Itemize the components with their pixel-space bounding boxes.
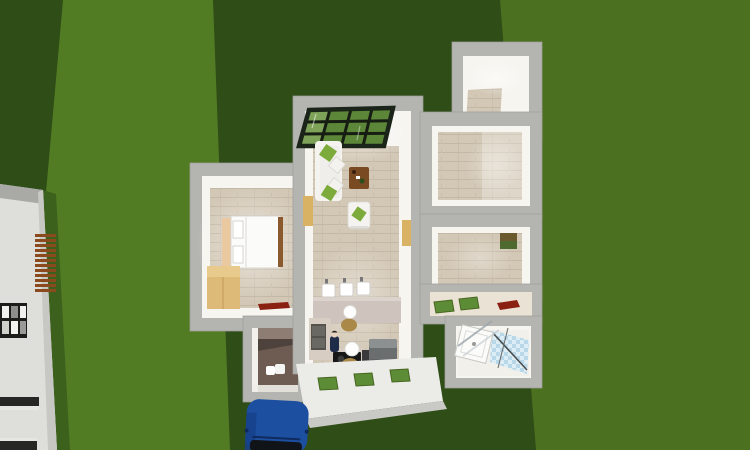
pendant-lamp[interactable] [344, 306, 357, 319]
doormat[interactable] [354, 373, 374, 386]
doormat[interactable] [459, 297, 479, 310]
doormat[interactable] [434, 300, 454, 313]
sofa[interactable] [315, 141, 345, 201]
pendant-lamp[interactable] [345, 342, 359, 356]
living-room [293, 96, 423, 379]
double-bed[interactable] [222, 216, 283, 268]
doormat[interactable] [318, 377, 338, 390]
coffee-table[interactable] [349, 167, 369, 189]
plant [359, 178, 364, 183]
door-left[interactable] [303, 196, 313, 226]
round-rug [341, 319, 357, 332]
glass-skylight [299, 108, 393, 146]
lit-floor-edge [252, 385, 298, 392]
window-grid [0, 303, 27, 338]
3d-viewport[interactable] [0, 0, 750, 450]
wardrobe[interactable] [207, 266, 240, 309]
shower-bathroom [445, 316, 542, 388]
person-figure[interactable] [330, 331, 339, 353]
pillow [233, 221, 243, 238]
door-right[interactable] [402, 220, 411, 246]
bathroom-back-wall [252, 328, 298, 339]
pillow [233, 246, 243, 263]
doormat[interactable] [390, 369, 410, 382]
wall-cabinet[interactable] [500, 233, 517, 249]
room-upper-right [420, 112, 542, 218]
blue-car[interactable] [244, 398, 311, 450]
lit-wall [252, 328, 258, 392]
armchair[interactable] [348, 202, 370, 230]
